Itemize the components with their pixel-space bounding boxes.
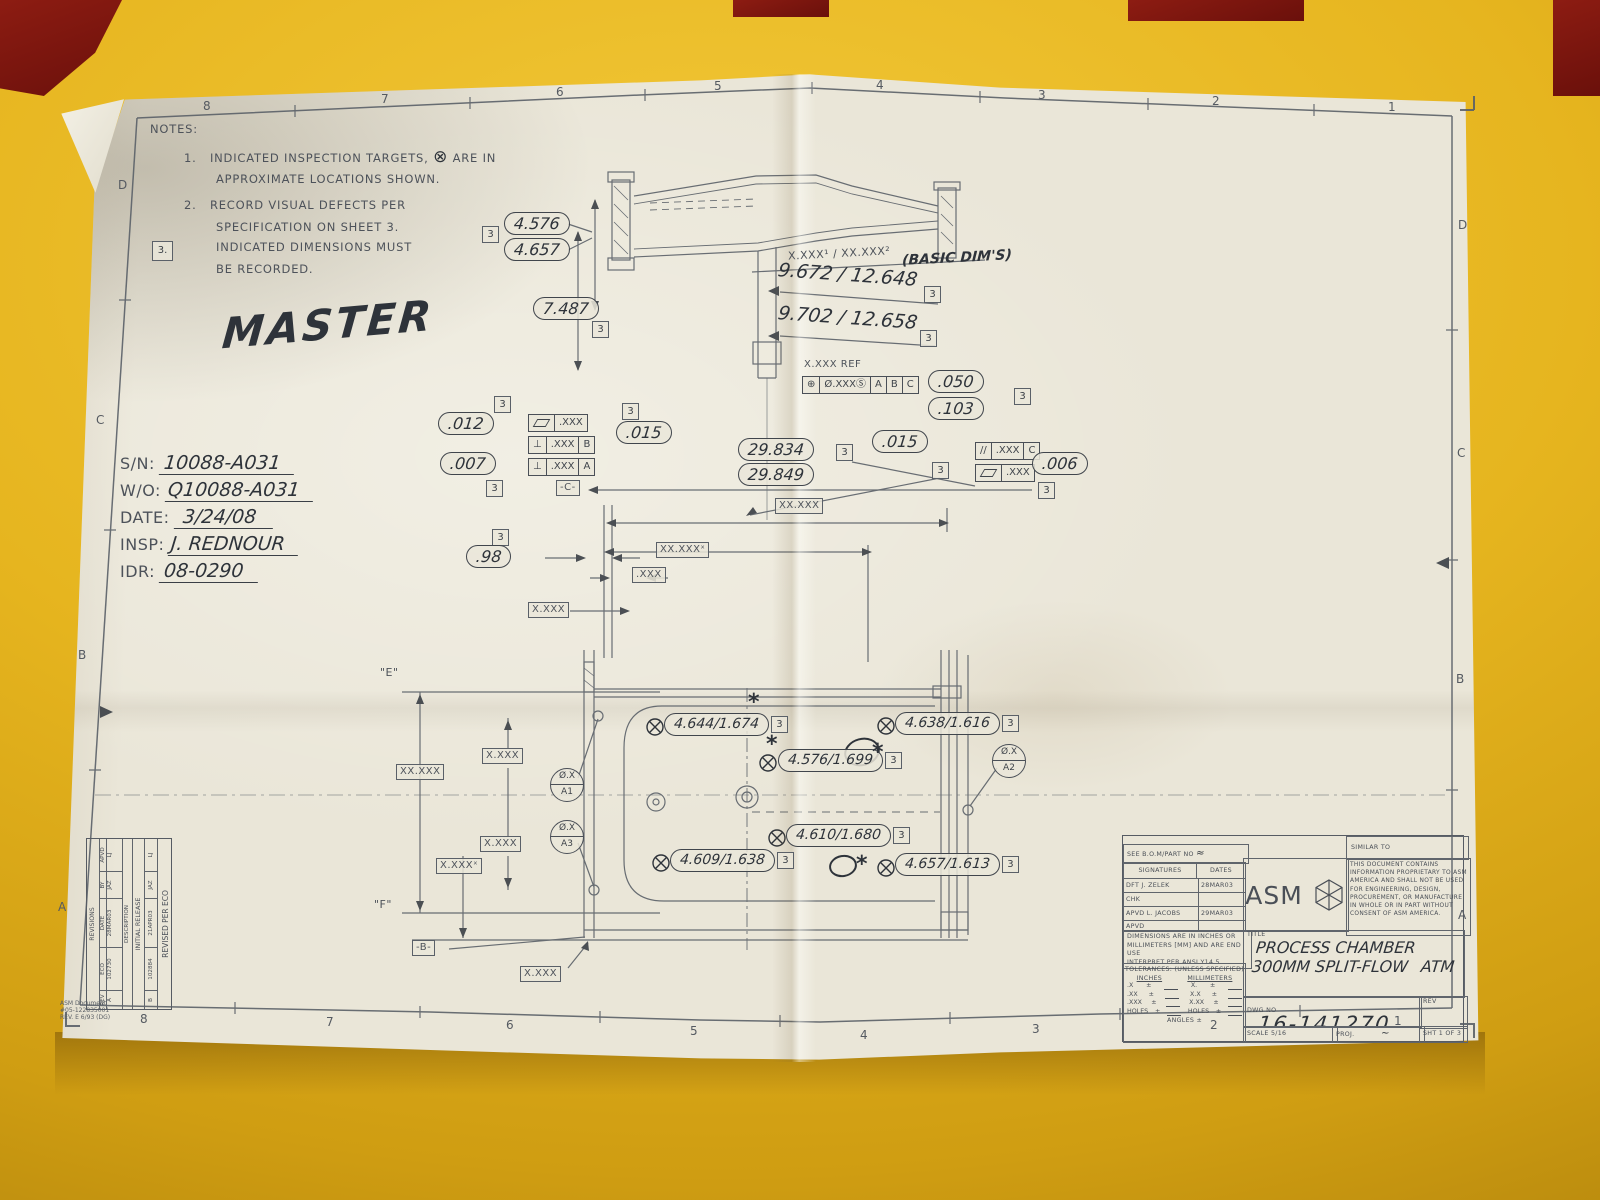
target-6-value: 4.657/1.613 (904, 854, 991, 875)
flag-3: 3 (777, 852, 794, 869)
apvd-b: LJ (145, 839, 157, 871)
zone-top-8: 8 (203, 99, 211, 113)
dim-4576: 4.576 (513, 213, 561, 234)
note-3-flag: 3. (152, 238, 173, 261)
proprietary-text: THIS DOCUMENT CONTAINS INFORMATION PROPR… (1350, 861, 1467, 918)
zone-bottom-5: 5 (690, 1024, 698, 1038)
dim-7487: 7.487 (542, 298, 590, 319)
datum-target-id: A2 (1003, 761, 1015, 776)
target-2-value: 4.576/1.699 (787, 750, 874, 771)
flag-3: 3 (836, 444, 853, 461)
dim-007: .007 (449, 453, 487, 474)
dims-note-1: DIMENSIONS ARE IN INCHES OR (1127, 933, 1248, 942)
title-line-1: PROCESS CHAMBER (1243, 939, 1416, 956)
target-callout-4: 4.610/1.680 3 (786, 824, 910, 847)
datum-target-id: A3 (561, 837, 573, 852)
note-3-line-2: BE RECORDED. (216, 262, 313, 276)
datum-target-size: Ø.X (551, 769, 583, 785)
title-line-2: 300MM SPLIT-FLOW (1243, 958, 1409, 975)
eco-col-a: ECO102730 (100, 947, 122, 990)
sig-dft: DFT J. ZELEK (1124, 879, 1199, 892)
tol-in-holes: HOLES (1127, 1008, 1148, 1017)
tolerance-value: .XXX (547, 437, 580, 453)
ref-dim-box: XX.XXX (396, 764, 444, 780)
rev-b: B (145, 990, 157, 1009)
pen-star-mark: * (748, 690, 760, 715)
flag-3: 3 (1014, 388, 1031, 405)
note-2-number: 2. (184, 198, 197, 212)
proprietary-cell: THIS DOCUMENT CONTAINS INFORMATION PROPR… (1346, 858, 1471, 936)
dim-98-balloon: .98 (466, 545, 511, 568)
sig-apvd1: APVD L. JACOBS (1124, 907, 1199, 920)
note-1-line-1: 1. INDICATED INSPECTION TARGETS, ⊗ ARE I… (184, 150, 496, 165)
dim-007-balloon: .007 (440, 452, 496, 475)
target-1-balloon: 4.644/1.674 (664, 713, 769, 736)
note-3-line-1: INDICATED DIMENSIONS MUST (216, 240, 412, 254)
date-b: 21APR03 (145, 898, 157, 947)
zone-bottom-8: 8 (140, 1012, 148, 1026)
parallelism-symbol-icon: // (976, 443, 992, 459)
flag-3: 3 (1002, 715, 1019, 732)
date-col-header: DATE (100, 899, 107, 947)
insp-value: J. REDNOUR (168, 533, 300, 556)
datum-b-box: -B- (412, 940, 435, 956)
wo-label: W/O: (120, 481, 161, 500)
dim-29834: 29.834 (747, 439, 805, 460)
eco-col-header: ECO (100, 948, 107, 990)
flag-3: 3 (920, 330, 937, 347)
pen-star-mark: * (856, 852, 868, 877)
datum-a-ref: A (871, 377, 887, 393)
flag-3: 3 (885, 752, 902, 769)
perpendicularity-symbol-icon: ⊥ (529, 459, 547, 475)
inspection-target-icon: ⊗ (433, 147, 448, 167)
zone-left-d: D (118, 178, 127, 192)
target-5-value: 4.609/1.638 (679, 850, 766, 871)
dim-012-balloon: .012 (438, 412, 494, 435)
note-1-text: INDICATED INSPECTION TARGETS, (210, 151, 429, 165)
note-2-line-1: 2. RECORD VISUAL DEFECTS PER (184, 198, 406, 212)
target-callout-5: 4.609/1.638 3 (670, 849, 794, 872)
ref-dim-box: XX.XXXˣ (656, 542, 709, 558)
datum-target-id: A1 (561, 785, 573, 800)
ref-dim-box: XX.XXX (775, 498, 823, 514)
inches-header: INCHES (1137, 975, 1162, 982)
title-cell: TITLE PROCESS CHAMBER 300MM SPLIT-FLOW A… (1243, 930, 1465, 998)
view-label-e: "E" (380, 666, 399, 679)
apvd-col-header: APVD (100, 839, 107, 871)
datum-target-size: Ø.X (993, 745, 1025, 761)
idr-value: 08-0290 (159, 560, 261, 583)
flag-3: 3 (492, 529, 509, 546)
target-4-balloon: 4.610/1.680 (786, 824, 891, 847)
signatures-table: SIGNATURES DATES DFT J. ZELEK 28MAR03 CH… (1123, 862, 1246, 932)
position-tolerance-frame: ⊕ Ø.XXXⓈ A B C (802, 376, 919, 394)
zone-bottom-3: 3 (1032, 1022, 1040, 1036)
dim-103: .103 (937, 398, 975, 419)
dim-4576-balloon: 4.576 (504, 212, 570, 235)
tol-in-xxx: .XXX (1127, 999, 1142, 1008)
datum-c-ref: C (903, 377, 918, 393)
dim-050-balloon: .050 (928, 370, 984, 393)
proj-handwritten-mark: ~ (1356, 1027, 1390, 1041)
zone-top-4: 4 (876, 78, 884, 92)
tol-mm-x: X. (1191, 982, 1197, 991)
position-symbol-icon: ⊕ (803, 377, 820, 393)
dims-note-2: MILLIMETERS [MM] AND ARE END USE (1127, 942, 1248, 959)
position-tolerance: Ø.XXXⓈ (820, 377, 871, 393)
dim-012: .012 (447, 413, 485, 434)
revisions-block: REVISIONS REVA ECO102730 DATE28MAR03 BYJ… (86, 838, 172, 1010)
tolerance-value: .XXX (555, 415, 587, 431)
zone-left-b: B (78, 648, 86, 662)
dwg-no-cell: DWG NO 16-141270 (1243, 996, 1422, 1028)
zone-top-5: 5 (714, 79, 722, 93)
logo-cell: ASM (1243, 858, 1349, 932)
doc-note-2: #05-122835001 (60, 1007, 140, 1014)
datum-a-ref: A (579, 459, 594, 475)
flag-3: 3 (592, 321, 609, 338)
flag-3: 3 (622, 403, 639, 420)
note-2-text: RECORD VISUAL DEFECTS PER (210, 198, 406, 212)
view-label-f: "F" (374, 898, 392, 911)
note-1-number: 1. (184, 151, 197, 165)
see-bom-handwritten-mark: ≈ (1195, 845, 1206, 863)
description-b: REVISED PER ECO (158, 839, 174, 1009)
apvd-a: LJ (107, 853, 113, 858)
dim-006-balloon: .006 (1032, 452, 1088, 475)
datum-target-a3: Ø.XA3 (550, 820, 584, 854)
flag-3: 3 (1038, 482, 1055, 499)
flag-3: 3 (486, 480, 503, 497)
form-document-note: ASM Document #05-122835001 REV. E 6/93 (… (60, 1000, 140, 1021)
tol-in-xx: .XX (1127, 991, 1138, 1000)
see-bom-label: SEE B.O.M/PART NO (1127, 851, 1194, 858)
zone-top-7: 7 (381, 92, 389, 106)
dim-98: .98 (475, 546, 503, 567)
proj-cell: PROJ. ~ (1332, 1026, 1425, 1043)
target-1-value: 4.644/1.674 (673, 714, 760, 735)
flatness-frame-2: .XXX (975, 464, 1035, 482)
tolerance-value: .XXX (1002, 465, 1034, 481)
target-6-balloon: 4.657/1.613 (895, 853, 1000, 876)
dim-4657: 4.657 (513, 239, 561, 260)
zone-left-a: A (58, 900, 66, 914)
by-a: JAZ (107, 880, 113, 889)
perpendicularity-frame-a: ⊥.XXXA (528, 458, 595, 476)
zone-top-3: 3 (1038, 88, 1046, 102)
by-col-header: BY (100, 872, 107, 898)
dim-006: .006 (1041, 453, 1079, 474)
zone-bottom-4: 4 (860, 1028, 868, 1042)
ref-dim-box: X.XXX (482, 748, 523, 764)
title-label: TITLE (1244, 931, 1464, 938)
eco-b: 102884 (145, 947, 157, 990)
dim-015b-balloon: .015 (872, 430, 928, 453)
doc-note-1: ASM Document (60, 1000, 140, 1007)
idr-label: IDR: (120, 562, 155, 581)
scale-cell: SCALE 5/16 (1243, 1026, 1338, 1043)
dim-015: .015 (881, 431, 919, 452)
note-1-text-cont: ARE IN (453, 151, 497, 165)
target-callout-6: 4.657/1.613 3 (895, 853, 1019, 876)
tolerance-value: Ø.XXX (824, 377, 856, 393)
datum-target-a1: Ø.XA1 (550, 768, 584, 802)
ref-dim-box: X.XXX (520, 966, 561, 982)
dim-29834-balloon: 29.834 (738, 438, 814, 461)
date-a: 28MAR03 (107, 910, 113, 937)
dim-4657-balloon: 4.657 (504, 238, 570, 261)
angles-tolerance: ANGLES ± (1124, 1016, 1245, 1026)
see-bom-cell: SEE B.O.M/PART NO ≈ (1123, 844, 1249, 864)
zone-right-c: C (1457, 446, 1465, 460)
tolerances-heading: TOLERANCES: (UNLESS SPECIFIED) (1124, 964, 1245, 975)
date-value: 3/24/08 (173, 506, 275, 529)
datum-target-a2: Ø.XA2 (992, 744, 1026, 778)
description-header: DESCRIPTION (123, 839, 132, 1009)
flatness-frame: .XXX (528, 414, 588, 432)
dim-015a-balloon: .015 (616, 421, 672, 444)
flag-3: 3 (771, 716, 788, 733)
by-col-a: BYJAZ (100, 871, 122, 898)
fcf-stack: .XXX ⊥.XXXB ⊥.XXXA (528, 412, 595, 476)
tol-in-x: .X (1127, 982, 1133, 991)
flatness-symbol-icon (976, 465, 1002, 481)
notes-heading: NOTES: (150, 122, 198, 136)
proj-label: PROJ. (1336, 1031, 1355, 1038)
ref-dim-box: .XXX (632, 567, 666, 583)
tolerance-value: .XXX (547, 459, 580, 475)
flatness-symbol-icon (529, 415, 555, 431)
dim-103-balloon: .103 (928, 397, 984, 420)
datum-c-box: -C- (556, 480, 580, 496)
pen-star-mark: * (766, 732, 778, 757)
note-2-line-2: SPECIFICATION ON SHEET 3. (216, 220, 399, 234)
by-b: JAZ (145, 871, 157, 898)
zone-top-2: 2 (1212, 94, 1220, 108)
datum-b-ref: B (887, 377, 903, 393)
description-a: INITIAL RELEASE (133, 839, 144, 1009)
dim-29849-balloon: 29.849 (738, 463, 814, 486)
title-line-3: ATM (1412, 958, 1455, 975)
flag-3: 3 (932, 462, 949, 479)
wo-value: Q10088-A031 (165, 479, 315, 502)
eco-a: 102730 (107, 958, 113, 979)
sig-apvd1-date: 29MAR03 (1199, 907, 1245, 920)
photo-of-engineering-drawing: 8 7 6 5 4 3 2 1 8 7 6 5 4 3 2 1 D C B A … (0, 0, 1600, 1200)
revisions-header: REVISIONS (87, 839, 99, 1009)
target-3-value: 4.638/1.616 (904, 713, 991, 734)
zone-bottom-7: 7 (326, 1015, 334, 1029)
perpendicularity-symbol-icon: ⊥ (529, 437, 547, 453)
apvd-col-a: APVDLJ (100, 839, 122, 871)
asm-hexagon-logo (1311, 877, 1347, 913)
xxx-ref-label: X.XXX REF (804, 359, 861, 370)
t-mm-xxx: X.XX (1189, 999, 1204, 1008)
sn-value: 10088-A031 (159, 452, 296, 475)
ref-dim-box: X.XXX (528, 602, 569, 618)
sheet-cell: SHT 1 OF 3 (1419, 1026, 1468, 1043)
signatures-header: SIGNATURES (1124, 863, 1197, 878)
similar-to-cell: SIMILAR TO (1346, 836, 1469, 860)
rev-cell: REV (1419, 996, 1468, 1029)
flag-3: 3 (893, 827, 910, 844)
parallelism-frame: // .XXX C (975, 442, 1040, 460)
pen-star-mark: * (872, 740, 884, 765)
target-3-balloon: 4.638/1.616 (895, 712, 1000, 735)
target-5-balloon: 4.609/1.638 (670, 849, 775, 872)
sn-label: S/N: (120, 454, 155, 473)
sig-chk-date (1199, 893, 1245, 906)
dim-7487-balloon: 7.487 (533, 297, 599, 320)
date-col-a: DATE28MAR03 (100, 898, 122, 947)
title-block: SEE B.O.M/PART NO ≈ SIMILAR TO SIGNATURE… (1122, 835, 1464, 1042)
dates-header: DATES (1197, 863, 1245, 878)
tol-mm-xx: X.X (1190, 991, 1201, 1000)
millimeters-header: MILLIMETERS (1187, 975, 1232, 982)
ref-dim-box: X.XXXˣ (436, 858, 482, 874)
flag-3: 3 (924, 286, 941, 303)
tolerance-value: .XXX (992, 443, 1025, 459)
note-1-line-2: APPROXIMATE LOCATIONS SHOWN. (216, 172, 440, 186)
zone-bottom-6: 6 (506, 1018, 514, 1032)
dim-29849: 29.849 (747, 464, 805, 485)
inspection-record: S/N: 10088-A031 W/O: Q10088-A031 DATE: 3… (120, 452, 314, 587)
zone-top-1: 1 (1388, 100, 1396, 114)
flag-3: 3 (482, 226, 499, 243)
tolerances-cell: TOLERANCES: (UNLESS SPECIFIED) INCHES MI… (1123, 963, 1246, 1043)
sig-dft-date: 28MAR03 (1199, 879, 1245, 892)
tol-mm-holes: HOLES (1188, 1008, 1209, 1017)
sig-chk: CHK (1124, 893, 1199, 906)
target-callout-3: 4.638/1.616 3 (895, 712, 1019, 735)
zone-right-d: D (1458, 218, 1467, 232)
ref-dim-box: X.XXX (480, 836, 521, 852)
perpendicularity-frame-b: ⊥.XXXB (528, 436, 595, 454)
asm-logo-text: ASM (1245, 881, 1303, 910)
doc-note-3: REV. E 6/93 (DG) (60, 1014, 140, 1021)
dim-015: .015 (625, 422, 663, 443)
zone-left-c: C (96, 413, 104, 427)
flag-3: 3 (1002, 856, 1019, 873)
datum-target-size: Ø.X (551, 821, 583, 837)
material-modifier: Ⓢ (856, 377, 866, 393)
note-3-number: 3. (152, 241, 173, 261)
flag-3: 3 (494, 396, 511, 413)
insp-label: INSP: (120, 535, 164, 554)
dim-050: .050 (937, 371, 975, 392)
target-4-value: 4.610/1.680 (795, 825, 882, 846)
datum-b-ref: B (579, 437, 594, 453)
date-label: DATE: (120, 508, 170, 527)
zone-right-b: B (1456, 672, 1464, 686)
zone-top-6: 6 (556, 85, 564, 99)
target-2-balloon: 4.576/1.699 (778, 749, 883, 772)
